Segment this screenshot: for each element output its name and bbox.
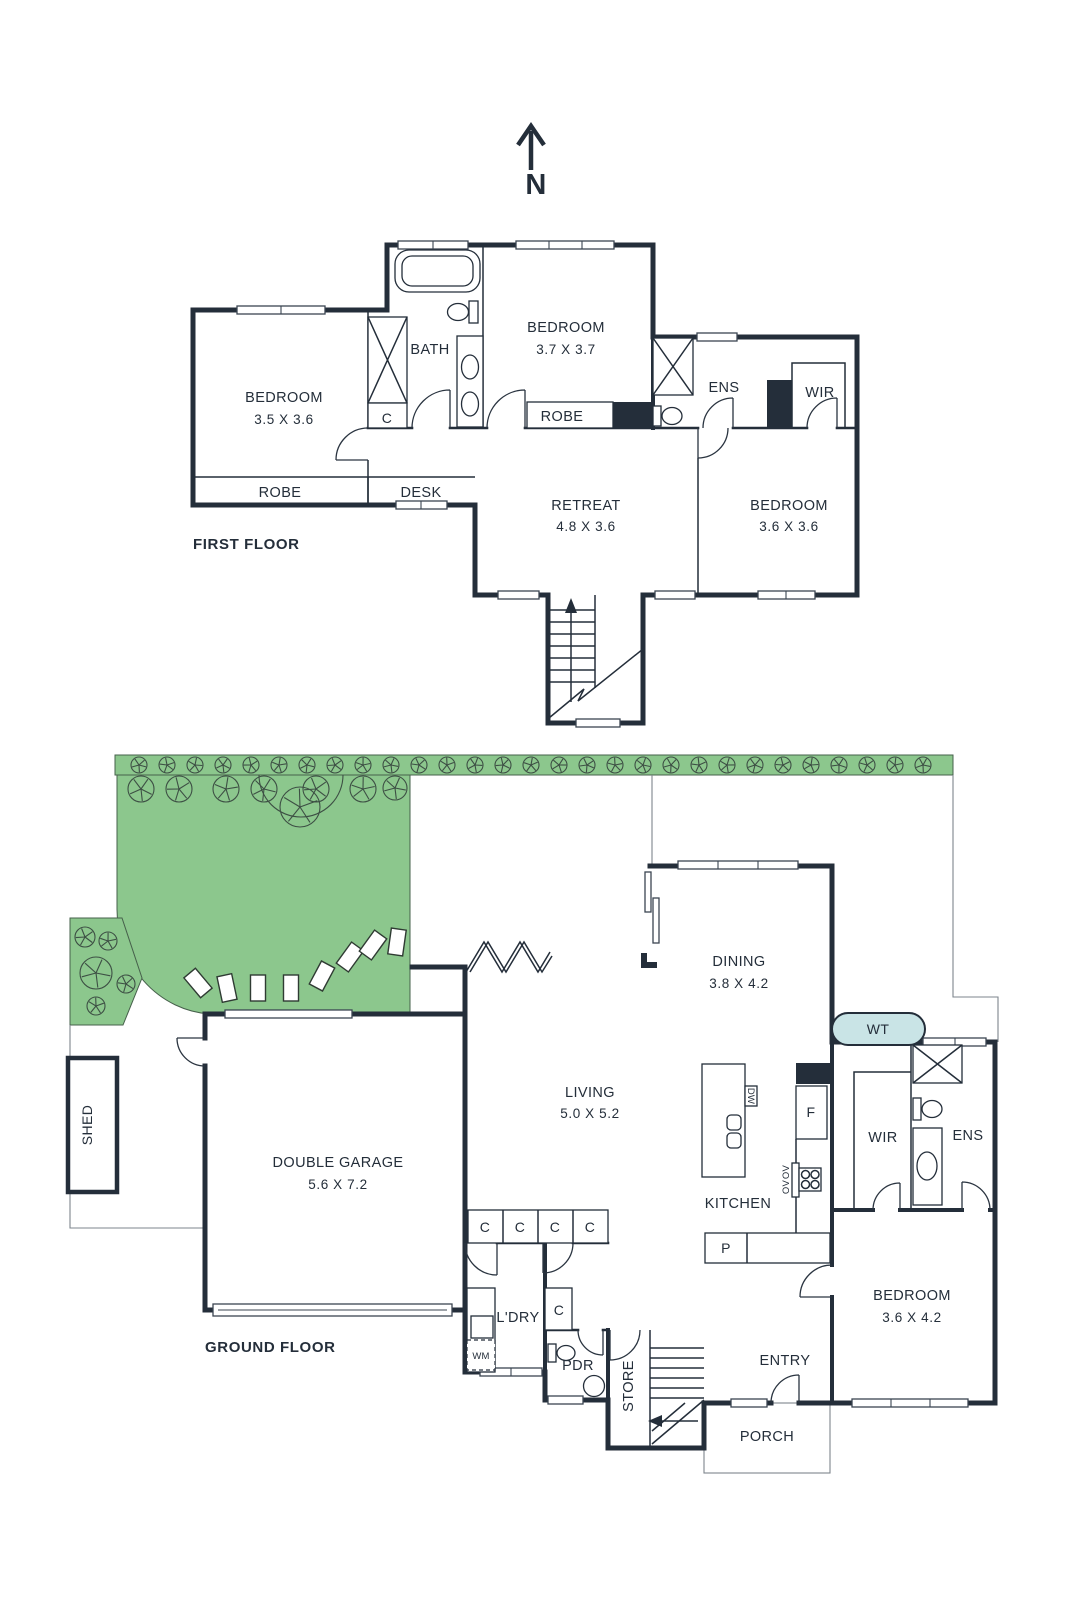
ens-toilet <box>653 406 682 426</box>
first-floor-title: FIRST FLOOR <box>193 536 300 553</box>
water-tank: WT <box>832 1013 925 1045</box>
ff-wir-label: WIR <box>805 385 834 401</box>
laundry-trough <box>471 1316 493 1338</box>
oven-tower <box>792 1163 799 1197</box>
living-dims: 5.0 X 5.2 <box>560 1106 619 1121</box>
ff-bath-fixtures <box>395 250 682 427</box>
water-tank-label: WT <box>867 1021 890 1037</box>
ff-bedroom2-label: BEDROOM <box>527 320 605 336</box>
laundry-label: L'DRY <box>496 1310 539 1326</box>
north-label: N <box>525 169 546 201</box>
ff-bath-label: BATH <box>410 342 449 358</box>
bathtub-inner <box>402 256 473 286</box>
ground-floor-title: GROUND FLOOR <box>205 1339 336 1356</box>
dishwasher-label: DW <box>745 1088 756 1104</box>
gf-stairs <box>648 1348 704 1444</box>
living-cupboards: C C C C <box>468 1210 608 1243</box>
garage-dims: 5.6 X 7.2 <box>308 1177 367 1192</box>
ff-bedroom1-label: BEDROOM <box>245 390 323 406</box>
oven2-label: OV <box>781 1179 792 1194</box>
cupboard-label: C <box>515 1219 526 1235</box>
cupboard-label: C <box>550 1219 561 1235</box>
gf-bedroom-label: BEDROOM <box>873 1288 951 1304</box>
cupboard-label: C <box>480 1219 491 1235</box>
entry-label: ENTRY <box>760 1353 811 1369</box>
sink-bowl-2 <box>727 1133 741 1148</box>
store-label: STORE <box>621 1360 637 1412</box>
porch-label: PORCH <box>740 1429 794 1445</box>
laundry-fixtures: WM C <box>467 1288 605 1397</box>
dining-dims: 3.8 X 4.2 <box>709 976 768 991</box>
pdr-basin <box>584 1376 605 1397</box>
ff-retreat-dims: 4.8 X 3.6 <box>556 519 615 534</box>
ff-cupboard-label: C <box>382 410 393 426</box>
pantry-label: P <box>721 1240 731 1256</box>
ff-desk-label: DESK <box>400 485 441 501</box>
cupboard-label: C <box>585 1219 596 1235</box>
ff-robe2-label: ROBE <box>541 409 584 425</box>
ff-windows <box>237 241 815 727</box>
kitchen-label: KITCHEN <box>705 1196 771 1212</box>
fridge-label: F <box>807 1104 816 1120</box>
cooktop <box>799 1168 821 1191</box>
stairs-up-arrow <box>565 598 577 613</box>
garage-label: DOUBLE GARAGE <box>273 1155 404 1171</box>
kitchen-wall-nib <box>796 1063 832 1084</box>
hall-cupboard-label: C <box>554 1302 565 1318</box>
shed: SHED <box>68 1058 117 1192</box>
stepping-stone <box>388 928 406 956</box>
living-label: LIVING <box>565 1085 615 1101</box>
ff-ens-label: ENS <box>708 380 739 396</box>
first-floor-plan: FIRST FLOOR BEDROOM 3.5 X 3.6 BATH C BED… <box>193 241 857 727</box>
vanity <box>457 336 483 427</box>
ff-wall-nib-wir <box>767 380 792 428</box>
ground-floor-plan: SHED <box>68 755 998 1473</box>
ff-stairs <box>548 595 643 718</box>
garden <box>70 755 953 1025</box>
gf-ens-fixtures <box>913 1045 962 1205</box>
pdr-label: PDR <box>562 1358 594 1374</box>
north-indicator: N <box>518 126 547 201</box>
sink-bowl-1 <box>727 1115 741 1130</box>
ff-wall-nib-robe <box>613 402 652 428</box>
gf-bedroom-dims: 3.6 X 4.2 <box>882 1310 941 1325</box>
toilet <box>448 301 479 323</box>
shed-label: SHED <box>79 1105 95 1146</box>
washing-machine-label: WM <box>472 1351 489 1362</box>
ff-bedroom2-dims: 3.7 X 3.7 <box>536 342 595 357</box>
kitchen-fixtures: DW F OV OV P <box>702 1064 830 1263</box>
ff-bedroom3-label: BEDROOM <box>750 498 828 514</box>
stepping-stone <box>251 975 266 1001</box>
dining-label: DINING <box>712 954 765 970</box>
ff-robe1-label: ROBE <box>259 485 302 501</box>
ff-bedroom3-dims: 3.6 X 3.6 <box>759 519 818 534</box>
gf-ens-label: ENS <box>952 1128 983 1144</box>
gf-wir-label: WIR <box>868 1130 897 1146</box>
ff-retreat-label: RETREAT <box>551 498 620 514</box>
dining-wall-nib <box>641 953 657 968</box>
open-boundary <box>466 872 659 972</box>
ff-exterior-wall <box>193 245 857 723</box>
stepping-stone <box>284 975 299 1001</box>
ff-bedroom1-dims: 3.5 X 3.6 <box>254 412 313 427</box>
oven1-label: OV <box>781 1164 792 1179</box>
floorplan-canvas: N <box>0 0 1067 1600</box>
floorplan-page: N <box>0 0 1067 1600</box>
